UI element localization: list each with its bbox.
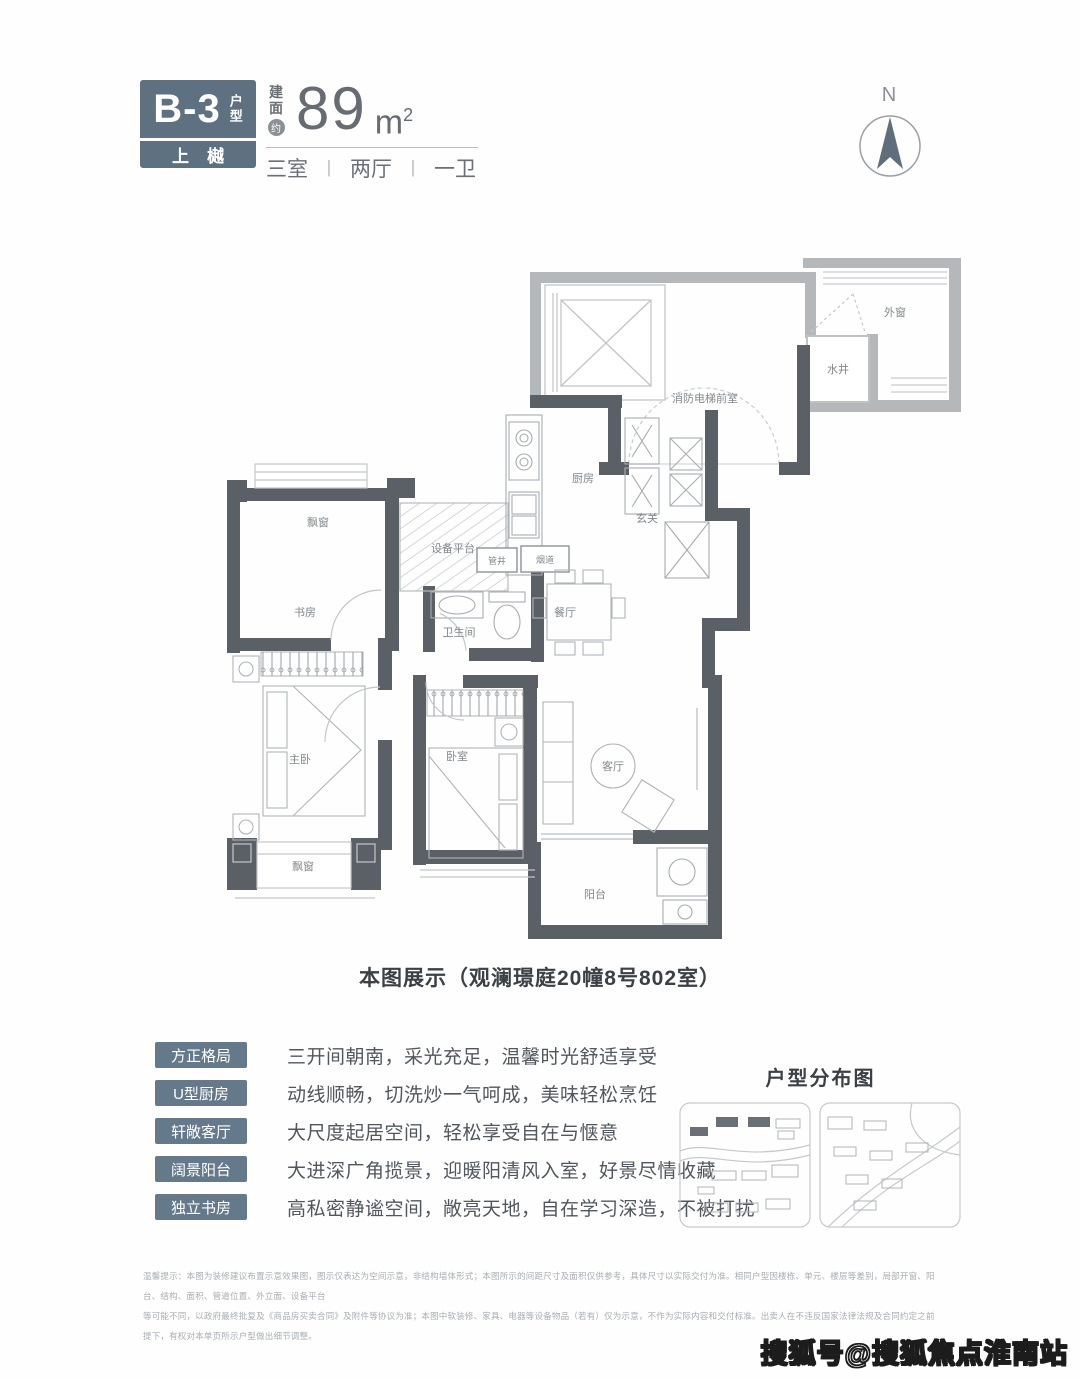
distribution-title: 户型分布图 [678, 1062, 963, 1091]
feature-desc: 三开间朝南，采光充足，温馨时光舒适享受 [287, 1042, 658, 1069]
watermark: 搜狐号@搜狐焦点淮南站 [761, 1332, 1068, 1371]
unit-distribution: 户型分布图 [678, 1062, 963, 1236]
room-label: 阳台 [584, 887, 606, 901]
entry-closet [665, 438, 709, 578]
area-prefix: 建 面 约 [266, 84, 286, 136]
room-label: 玄关 [636, 511, 658, 525]
area-unit: m2 [375, 80, 413, 157]
room-label: 外窗 [884, 305, 906, 319]
room-label: 管井 [488, 555, 506, 566]
room-label: 书房 [294, 606, 316, 619]
unit-badge: B-3 户型 上樾 [140, 80, 256, 168]
unit-code: B-3 [153, 89, 220, 129]
feature-tag: 独立书房 [155, 1194, 247, 1220]
second-bed [429, 718, 523, 858]
unit-code-badge: B-3 户型 [140, 80, 256, 138]
room-label: 设备平台 [431, 541, 475, 555]
layout-summary: 三室 丨 两厅 丨 一卫 [266, 153, 476, 183]
balcony-fixtures [541, 834, 707, 924]
feature-row: 轩敞客厅 大尺度起居空间，轻松享受自在与惬意 [155, 1118, 755, 1144]
highlighted-buildings [690, 1117, 770, 1136]
room-label: 消防电梯前室 [672, 391, 738, 405]
floorplan-page: B-3 户型 上樾 建 面 约 89 m2 三室 丨 两厅 丨 一卫 N [0, 0, 1080, 1380]
outline-buildings [698, 1117, 928, 1212]
room-label: 水井 [827, 362, 849, 376]
bay-window-top [255, 464, 367, 488]
room-label: 客厅 [602, 759, 624, 773]
feature-list: 方正格局 三开间朝南，采光充足，温馨时光舒适享受 U型厨房 动线顺畅，切洗炒一气… [155, 1042, 755, 1232]
feature-tag: U型厨房 [155, 1080, 247, 1106]
elevator-shaft [545, 285, 665, 400]
feature-tag: 阔景阳台 [155, 1156, 247, 1182]
room-label: 飘窗 [307, 515, 329, 529]
distribution-map [678, 1099, 963, 1231]
layout-rooms: 三室 [266, 153, 308, 183]
feature-desc: 大尺度起居空间，轻松享受自在与惬意 [287, 1118, 619, 1145]
area-block: 建 面 约 89 m2 [266, 80, 413, 157]
room-label: 餐厅 [554, 605, 576, 619]
feature-row: U型厨房 动线顺畅，切洗炒一气呵成，美味轻松烹饪 [155, 1080, 755, 1106]
feature-tag: 轩敞客厅 [155, 1118, 247, 1144]
header-divider [266, 147, 478, 148]
separator: 丨 [404, 155, 422, 181]
master-wardrobe [261, 652, 363, 676]
feature-tag: 方正格局 [155, 1042, 247, 1068]
feature-row: 方正格局 三开间朝南，采光充足，温馨时光舒适享受 [155, 1042, 755, 1068]
room-label: 厨房 [572, 472, 594, 485]
plan-caption: 本图展示（观澜璟庭20幢8号802室） [0, 962, 1080, 992]
unit-code-suffix: 户型 [228, 94, 243, 124]
room-label: 烟道 [536, 554, 554, 565]
project-badge: 上樾 [140, 141, 256, 168]
north-compass: N [845, 84, 935, 190]
feature-row: 独立书房 高私密静谧空间，敞亮天地，自在学习深造，不被打扰 [155, 1194, 755, 1220]
feature-desc: 大进深广角揽景，迎暖阳清风入室，好景尽情收藏 [287, 1156, 716, 1183]
layout-baths: 一卫 [434, 153, 476, 183]
approx-circle-icon: 约 [268, 119, 285, 136]
separator: 丨 [320, 155, 338, 181]
area-value: 89 [296, 80, 367, 138]
room-label: 卧室 [446, 749, 468, 763]
master-bed [233, 656, 365, 840]
feature-desc: 动线顺畅，切洗炒一气呵成，美味轻松烹饪 [287, 1080, 658, 1107]
compass-icon [851, 107, 929, 185]
room-label: 卫生间 [443, 625, 476, 639]
layout-halls: 两厅 [350, 153, 392, 183]
unit-suffix-text: 户型 [228, 94, 243, 124]
disclaimer-line1: 温馨提示：本图为装修建议布置示意效果图，图示仅表达为空间示意，非结构墙体形式；本… [143, 1266, 938, 1306]
room-label: 飘窗 [292, 859, 314, 873]
dining-table [533, 570, 625, 655]
north-label: N [843, 84, 935, 107]
room-label: 主卧 [289, 753, 311, 766]
floorplan-drawing: 消防电梯前室 外窗 水井 厨房 玄关 设备平台 烟道 管井 卫生间 餐厅 书房 … [205, 250, 965, 950]
feature-row: 阔景阳台 大进深广角揽景，迎暖阳清风入室，好景尽情收藏 [155, 1156, 755, 1182]
bedroom-window-lines [420, 870, 535, 877]
